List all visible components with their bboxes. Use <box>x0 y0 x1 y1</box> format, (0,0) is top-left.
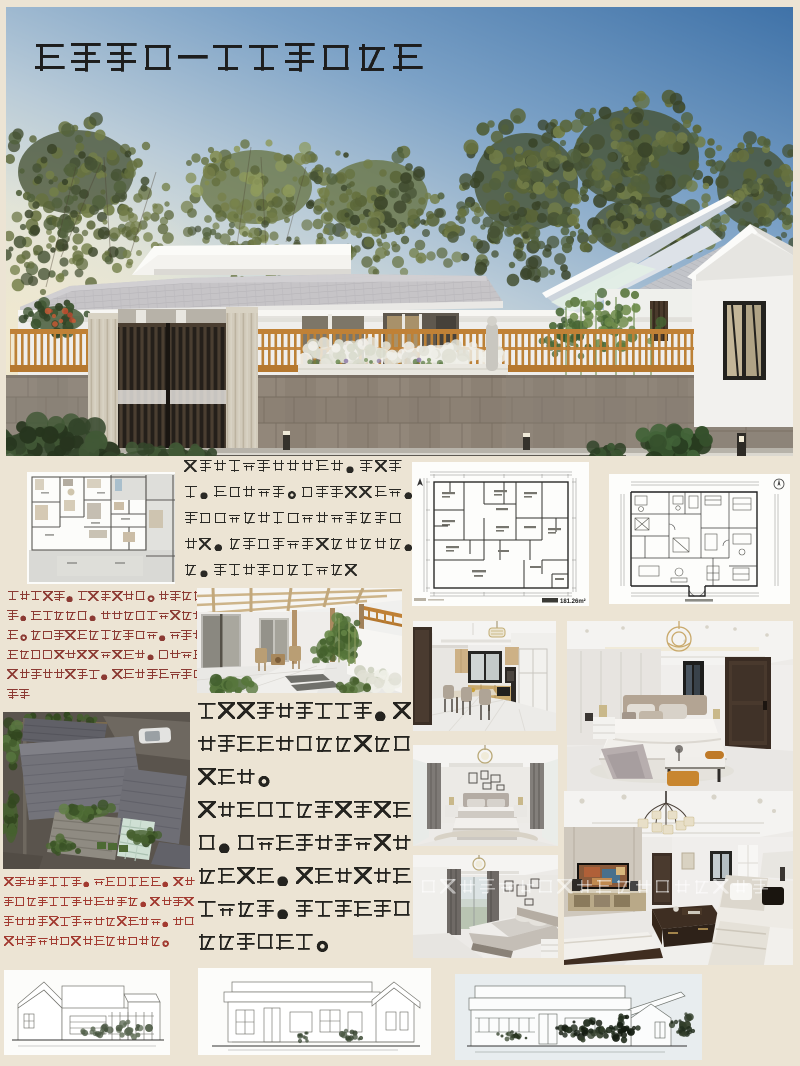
svg-text:181.26m²: 181.26m² <box>560 598 586 605</box>
